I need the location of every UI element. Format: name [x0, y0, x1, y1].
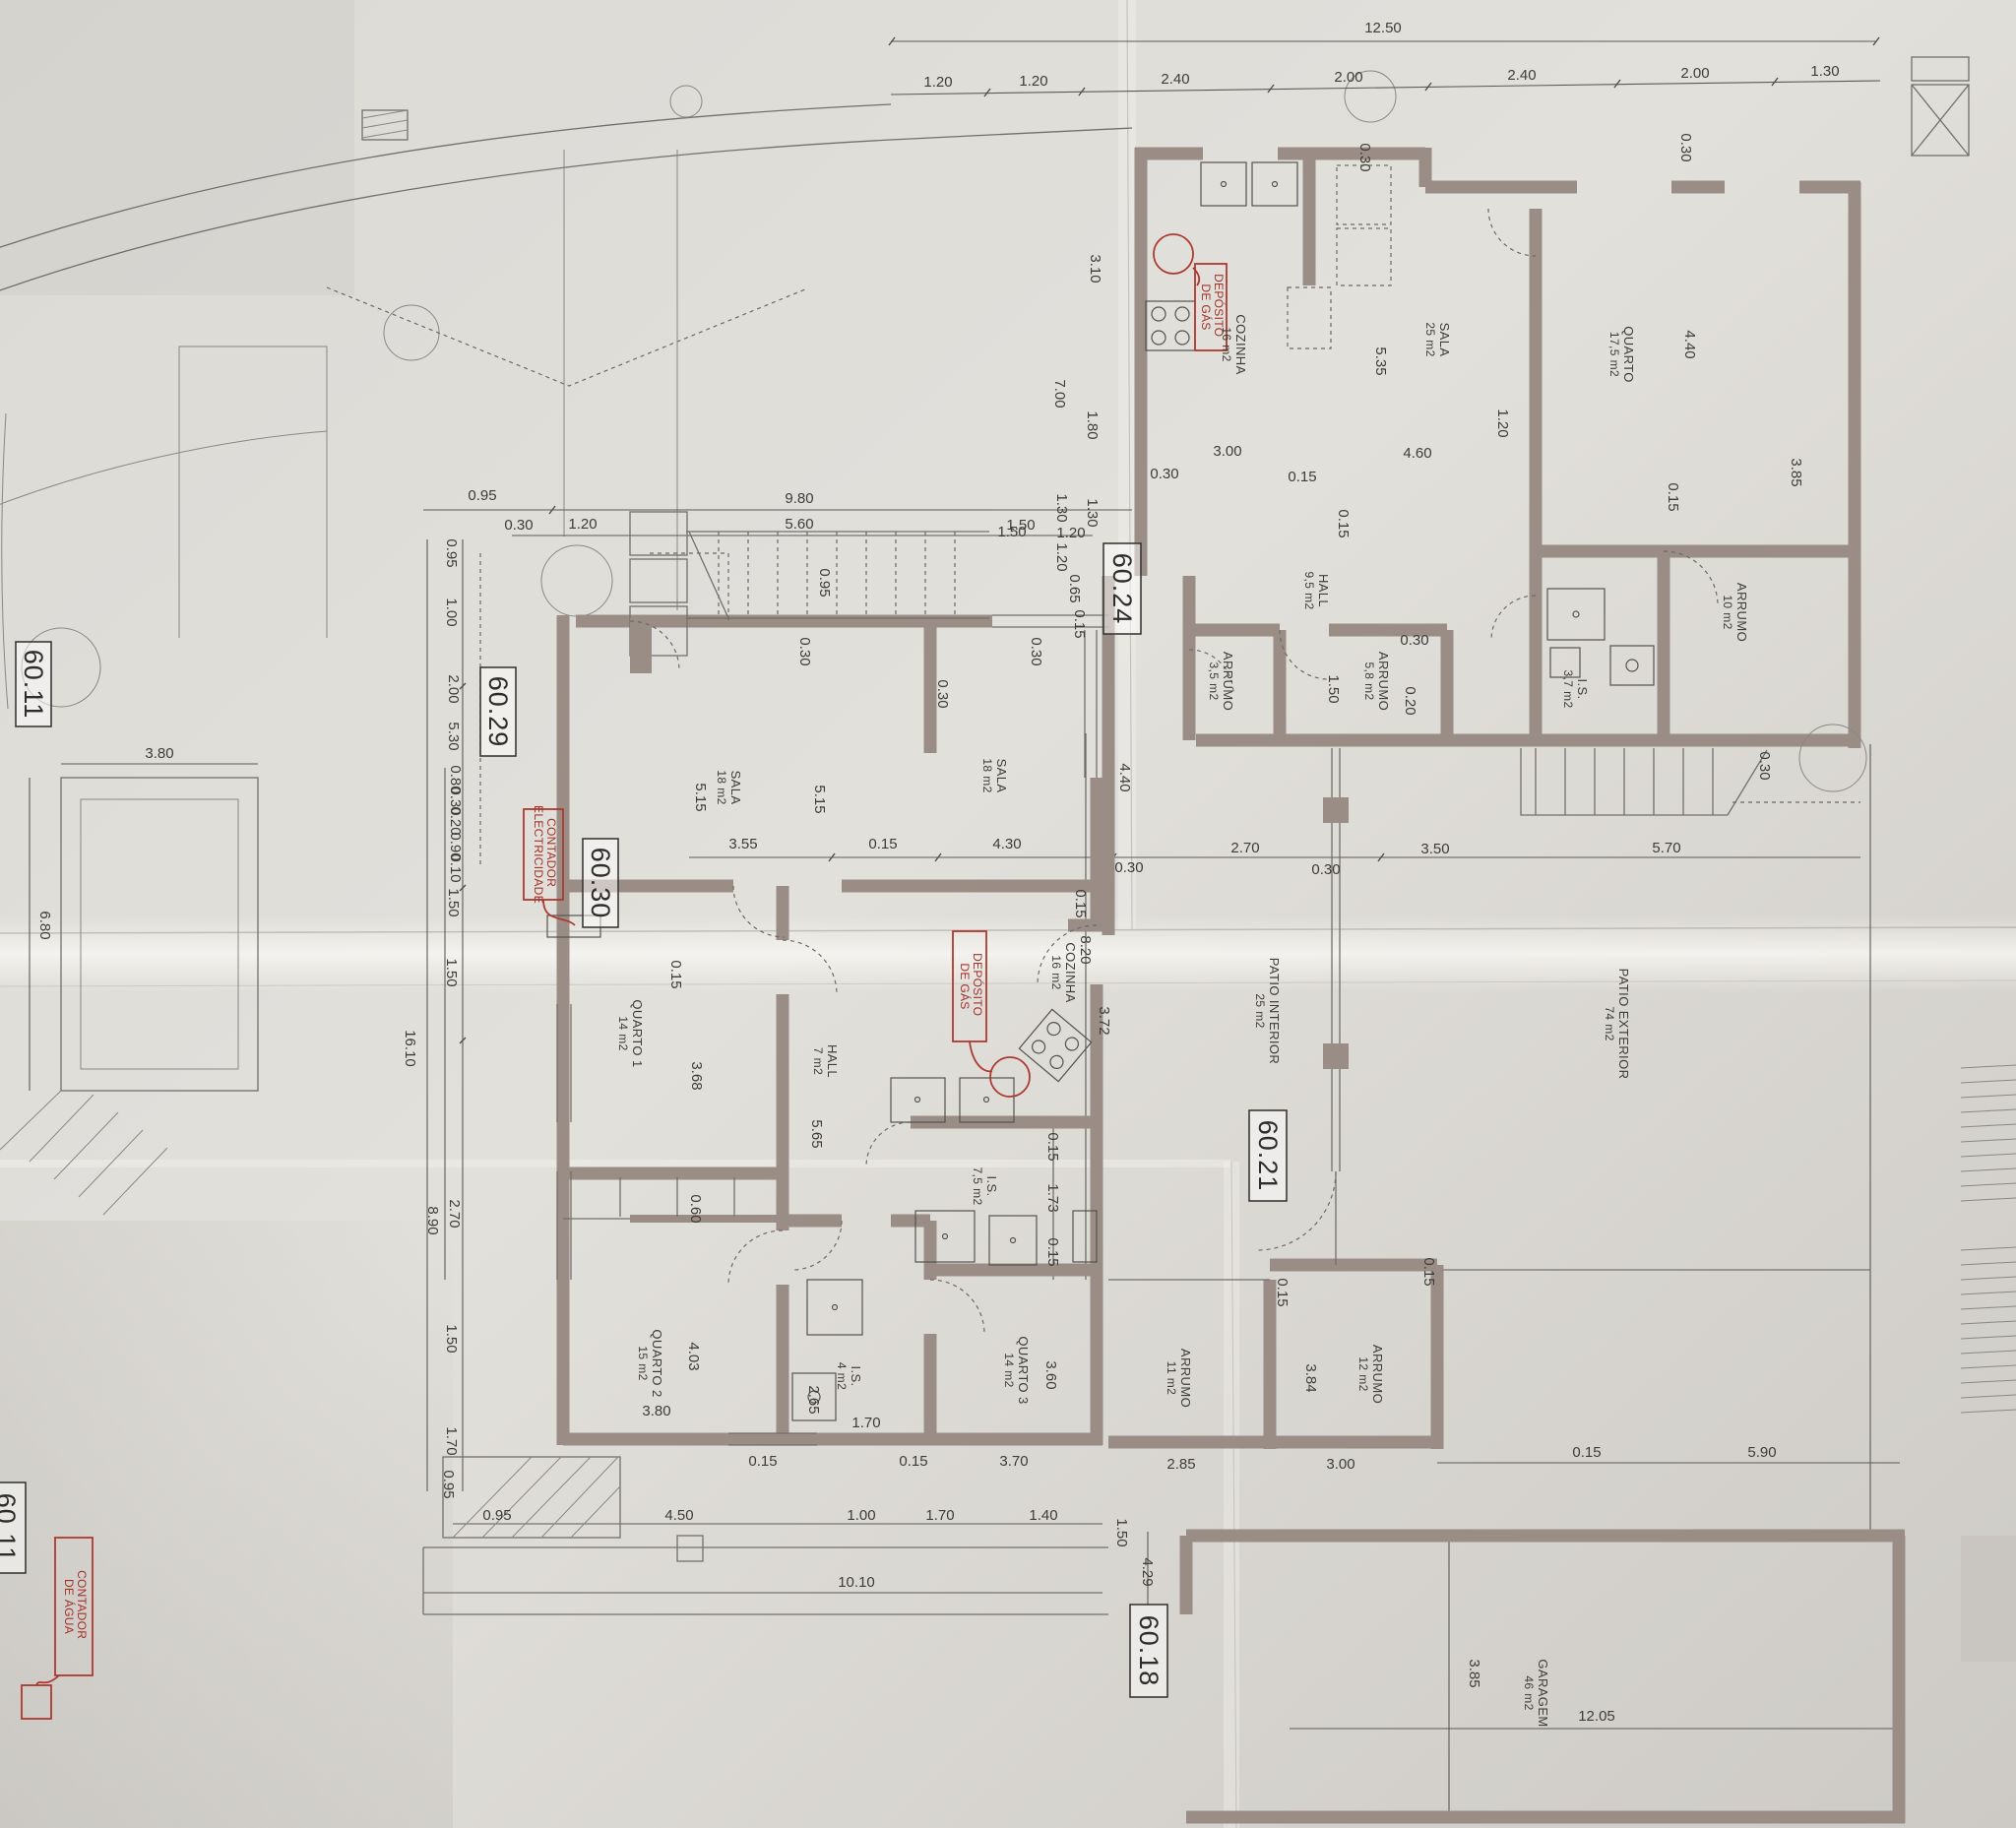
dim-label: 6.80 [36, 911, 53, 939]
dim-label: 16.10 [402, 1030, 418, 1067]
svg-text:60.11: 60.11 [19, 650, 48, 720]
dim-label: 3.60 [1042, 1360, 1059, 1389]
dim-label: 0.15 [748, 1453, 777, 1470]
dim-label: 5.65 [808, 1119, 825, 1148]
dim-label: 5.70 [1652, 840, 1680, 856]
dim-label: 1.20 [923, 74, 952, 91]
dim-label: 0.95 [440, 1470, 457, 1498]
room-label-hall-upper: HALL9,5 m2 [1302, 571, 1331, 609]
dim-label: 1.00 [443, 598, 460, 626]
dim-label: 0.15 [1044, 1132, 1061, 1161]
dim-label: 2.00 [1680, 65, 1709, 82]
dim-label: 1.70 [925, 1507, 954, 1524]
room-label-sala-18-b: SALA18 m2 [980, 758, 1009, 792]
dim-label: 0.15 [1572, 1444, 1601, 1461]
dim-label: 2.85 [1166, 1456, 1195, 1473]
dim-label: 0.20 [1402, 686, 1418, 715]
dim-label: 3.85 [1788, 458, 1804, 486]
dim-label: 1.70 [851, 1415, 880, 1431]
dim-label: 5.15 [811, 785, 828, 813]
dim-label: 0.30 [1114, 859, 1143, 876]
dim-label: 3.80 [642, 1403, 670, 1419]
dim-label: 8.90 [424, 1206, 441, 1234]
svg-text:60.11: 60.11 [0, 1493, 21, 1563]
dim-label: 7.00 [1051, 379, 1068, 408]
dim-label: 0.30 [1756, 751, 1773, 780]
dim-label: 12.05 [1578, 1708, 1615, 1725]
dim-label: 4.40 [1681, 330, 1698, 358]
dim-label: 1.30 [1053, 493, 1070, 522]
room-label-sala-upper: SALA25 m2 [1423, 322, 1452, 356]
svg-text:60.24: 60.24 [1107, 553, 1137, 625]
dim-label: 4.60 [1403, 445, 1431, 462]
dim-label: 1.20 [1056, 525, 1085, 541]
dim-label: 2.00 [445, 674, 462, 703]
dim-label: 12.50 [1364, 20, 1402, 36]
dim-label: 0.10 [447, 853, 464, 882]
dim-label: 5.90 [1747, 1444, 1776, 1461]
dim-label: 4.29 [1139, 1557, 1156, 1586]
dim-label: 3.85 [1466, 1659, 1482, 1687]
dim-label: 5.60 [785, 516, 813, 533]
dim-label: 0.30 [934, 679, 951, 708]
level-marker-60-21: 60.21 [1249, 1110, 1287, 1201]
dim-label: 3.10 [1087, 254, 1103, 283]
dim-label: 1.20 [1019, 73, 1047, 90]
dim-label: 0.15 [1288, 469, 1316, 485]
dim-label: 1.30 [1084, 498, 1101, 527]
dim-label: 0.15 [1420, 1257, 1437, 1286]
dim-label: 0.15 [1665, 482, 1681, 511]
dim-label: 3.68 [688, 1061, 705, 1090]
dim-label: 5.35 [1372, 347, 1389, 375]
dim-label: 1.73 [1044, 1183, 1061, 1212]
dim-label: 0.30 [1677, 133, 1694, 161]
dim-label: 1.20 [1494, 409, 1511, 437]
dim-label: 3.84 [1302, 1363, 1319, 1392]
dim-label: 1.50 [1006, 517, 1035, 534]
floor-plan-sheet: DEPÓSITO DE GÁS DEPÓSITO DE GÁS CONTADOR… [0, 0, 2016, 1828]
dim-label: 2.40 [1507, 67, 1536, 84]
dim-label: 0.95 [468, 487, 496, 504]
dim-label: 4.50 [664, 1507, 693, 1524]
dim-label: 0.15 [1274, 1278, 1291, 1306]
dim-label: 0.65 [1066, 574, 1083, 602]
dim-label: 1.50 [1325, 674, 1342, 703]
level-marker-60-29: 60.29 [480, 667, 516, 756]
svg-text:60.29: 60.29 [483, 676, 513, 748]
dim-label: 4.30 [992, 836, 1021, 852]
dim-label: 0.15 [899, 1453, 927, 1470]
fence-post [1323, 797, 1349, 823]
dim-label: 0.15 [1044, 1237, 1061, 1266]
level-marker-60-11-b: 60.11 [0, 1482, 26, 1573]
dim-label: 0.30 [1150, 466, 1178, 482]
dim-label: 2.70 [1230, 840, 1259, 856]
dim-label: 2.65 [805, 1385, 822, 1414]
level-marker-60-24: 60.24 [1103, 543, 1141, 634]
svg-text:60.30: 60.30 [586, 848, 615, 919]
level-marker-60-30: 60.30 [583, 839, 618, 927]
dim-label: 5.15 [692, 783, 709, 811]
dim-label: 4.40 [1116, 763, 1133, 791]
water-label: CONTADOR DE ÁGUA [62, 1570, 89, 1643]
dim-label: 0.30 [1356, 143, 1373, 171]
dim-label: 4.03 [685, 1342, 702, 1370]
room-label-sala-18-a: SALA18 m2 [715, 770, 743, 804]
dim-label: 0.95 [482, 1507, 511, 1524]
dim-label: 1.30 [1810, 63, 1839, 80]
dim-label: 5.30 [445, 722, 462, 750]
dim-label: 3.50 [1420, 841, 1449, 857]
dim-label: 3.70 [999, 1453, 1028, 1470]
svg-text:60.18: 60.18 [1134, 1615, 1164, 1687]
dim-label: 0.95 [443, 538, 460, 567]
dim-label: 0.60 [687, 1194, 704, 1223]
dim-label: 3.80 [145, 745, 173, 762]
dim-label: 0.15 [1071, 609, 1088, 638]
dim-label: 0.30 [1028, 637, 1044, 665]
dim-label: 2.00 [1334, 69, 1362, 86]
dim-label: 0.30 [1311, 861, 1340, 878]
dim-label: 0.30 [1400, 632, 1428, 649]
dim-label: 1.50 [443, 1324, 460, 1353]
level-marker-60-18: 60.18 [1130, 1605, 1167, 1697]
dim-label: 3.00 [1326, 1456, 1354, 1473]
dim-label: 1.00 [847, 1507, 875, 1524]
dim-label: 1.20 [1053, 542, 1070, 571]
dim-label: 1.50 [445, 888, 462, 916]
room-label-hall-7: HALL7 m2 [811, 1044, 840, 1078]
paper-background [0, 0, 2016, 1828]
dim-label: 8.20 [1077, 935, 1094, 964]
dim-label: 1.80 [1084, 410, 1101, 439]
dim-label: 2.40 [1161, 71, 1189, 88]
dim-label: 0.95 [816, 568, 833, 597]
electricity-label: CONTADOR ELECTRICIDADE [532, 805, 558, 904]
room-label-quarto-upper: QUARTO17,5 m2 [1607, 326, 1636, 383]
dim-label: 0.30 [504, 517, 533, 534]
dim-label: 9.80 [785, 490, 813, 507]
dim-label: 1.40 [1029, 1507, 1057, 1524]
dim-label: 0.20 [447, 806, 464, 835]
svg-text:60.21: 60.21 [1253, 1120, 1283, 1192]
dim-label: 10.10 [838, 1574, 875, 1591]
dim-label: 0.15 [1335, 509, 1352, 537]
dim-label: 0.30 [796, 637, 813, 665]
level-marker-60-11: 60.11 [16, 642, 51, 726]
fence-post [1323, 1043, 1349, 1069]
dim-label: 1.70 [443, 1426, 460, 1455]
dim-label: 1.50 [1113, 1518, 1130, 1546]
dim-label: 0.15 [1072, 889, 1089, 917]
dim-label: 2.70 [446, 1199, 463, 1228]
dim-label: 3.72 [1096, 1006, 1112, 1035]
dim-label: 1.20 [568, 516, 597, 533]
dim-label: 3.00 [1213, 443, 1241, 460]
dim-label: 0.15 [868, 836, 897, 852]
dim-label: 0.15 [667, 960, 684, 988]
dim-label: 3.55 [728, 836, 757, 852]
dim-label: 1.50 [443, 958, 460, 986]
room-label-is-4: I.S.4 m2 [835, 1362, 863, 1390]
